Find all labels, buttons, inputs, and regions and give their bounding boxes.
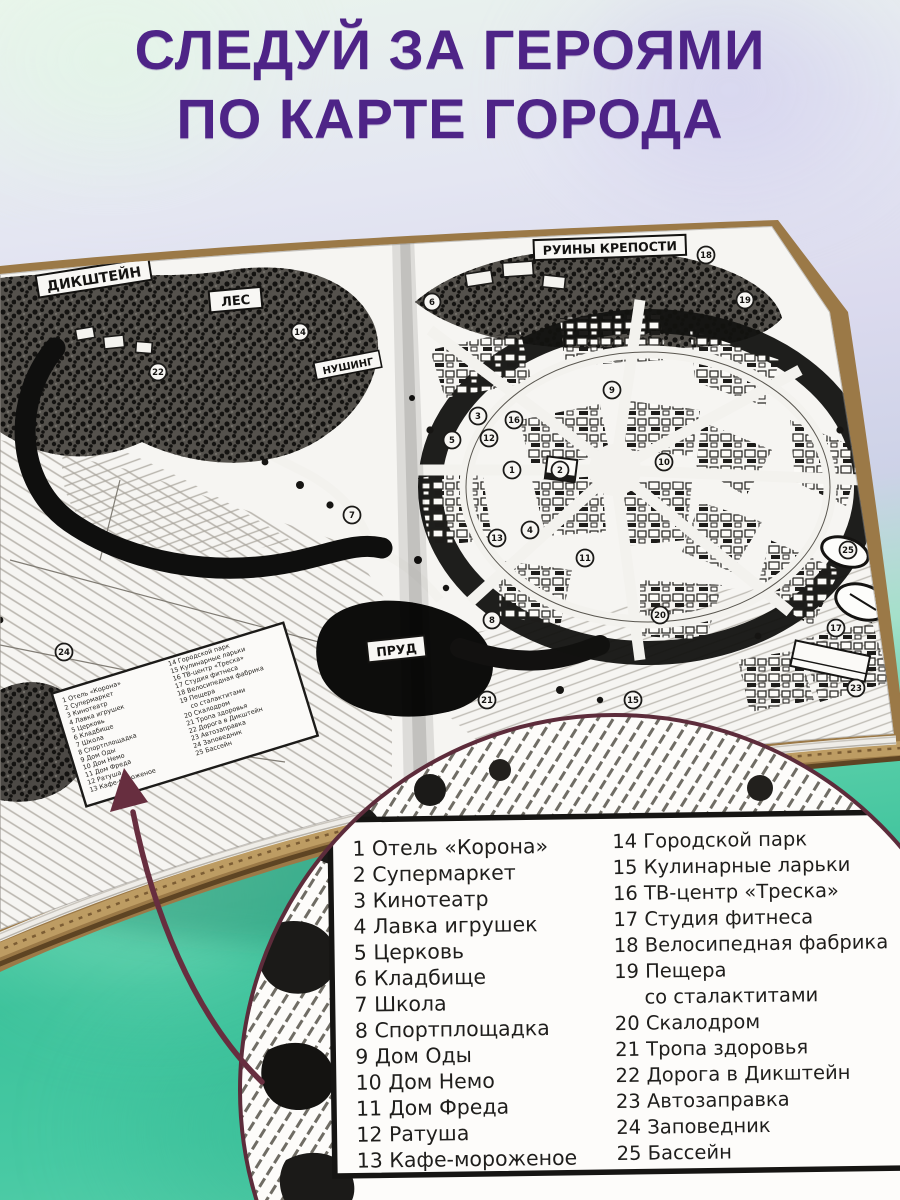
svg-text:16: 16: [508, 416, 520, 426]
map-marker-8: 8: [484, 612, 501, 629]
svg-text:25: 25: [842, 546, 854, 556]
svg-text:12: 12: [483, 434, 495, 444]
map-marker-18: 18: [698, 247, 715, 264]
map-marker-22: 22: [150, 364, 167, 381]
svg-text:6: 6: [429, 298, 435, 308]
legend-item: 23 Автозаправка: [616, 1088, 790, 1113]
svg-text:15: 15: [627, 696, 639, 706]
svg-text:11: 11: [579, 554, 591, 564]
svg-text:20: 20: [654, 611, 666, 621]
legend-item: 9 Дом Оды: [355, 1043, 472, 1069]
legend-item: 7 Школа: [354, 991, 446, 1016]
legend-item: 5 Церковь: [354, 939, 465, 965]
svg-text:9: 9: [609, 386, 615, 396]
legend-item: 14 Городской парк: [612, 827, 807, 853]
svg-text:17: 17: [830, 624, 842, 634]
legend-item: 20 Скалодром: [615, 1010, 761, 1035]
svg-text:21: 21: [481, 696, 493, 706]
map-marker-16: 16: [506, 412, 523, 429]
map-marker-5: 5: [444, 432, 461, 449]
map-marker-13: 13: [489, 530, 506, 547]
map-marker-21: 21: [479, 692, 496, 709]
map-marker-12: 12: [481, 430, 498, 447]
map-marker-4: 4: [522, 522, 539, 539]
sign-forest: ЛЕС: [209, 287, 263, 312]
svg-text:10: 10: [658, 458, 670, 468]
map-marker-11: 11: [577, 550, 594, 567]
svg-text:14: 14: [294, 328, 306, 338]
legend-item: со сталактитами: [644, 983, 818, 1008]
sign-ruins: РУИНЫ КРЕПОСТИ: [534, 235, 687, 260]
map-marker-6: 6: [424, 294, 441, 311]
svg-text:19: 19: [739, 296, 751, 306]
map-marker-25: 25: [840, 542, 857, 559]
svg-text:8: 8: [489, 616, 495, 626]
legend-item: 19 Пещера: [614, 959, 727, 984]
svg-text:22: 22: [152, 368, 164, 378]
map-marker-15: 15: [625, 692, 642, 709]
legend-item: 22 Дорога в Дикштейн: [615, 1061, 850, 1087]
svg-text:4: 4: [527, 526, 533, 536]
map-marker-14: 14: [292, 324, 309, 341]
svg-text:3: 3: [475, 412, 481, 422]
svg-text:2: 2: [557, 466, 563, 476]
map-marker-1: 1: [504, 462, 521, 479]
legend-item: 10 Дом Немо: [355, 1069, 495, 1095]
legend-item: 21 Тропа здоровья: [615, 1035, 808, 1061]
legend-item: 1 Отель «Корона»: [352, 834, 548, 861]
map-marker-9: 9: [604, 382, 621, 399]
legend-item: 16 ТВ-центр «Треска»: [613, 879, 839, 905]
legend-panel: 1 Отель «Корона»2 Супермаркет3 Кинотеатр…: [330, 812, 900, 1176]
legend-item: 18 Велосипедная фабрика: [614, 930, 889, 957]
central-plaza: [589, 444, 641, 496]
legend-item: 25 Бассейн: [616, 1140, 732, 1165]
legend-item: 15 Кулинарные ларьки: [613, 853, 851, 879]
map-marker-2: 2: [552, 462, 569, 479]
map-marker-3: 3: [470, 408, 487, 425]
map-marker-7: 7: [344, 507, 361, 524]
legend-item: 4 Лавка игрушек: [353, 912, 537, 939]
sign-forest-label: ЛЕС: [220, 293, 250, 310]
svg-text:23: 23: [850, 684, 862, 694]
legend-item: 3 Кинотеатр: [353, 887, 489, 913]
svg-text:24: 24: [58, 648, 70, 658]
legend-item: 2 Супермаркет: [353, 860, 516, 886]
svg-text:1: 1: [509, 466, 515, 476]
legend-item: 8 Спортплощадка: [355, 1016, 550, 1043]
scene: 1 Отель «Корона»2 Супермаркет3 Кинотеатр…: [0, 0, 900, 1200]
legend-item: 13 Кафе-мороженое: [357, 1146, 578, 1173]
legend-item: 6 Кладбище: [354, 965, 486, 991]
map-marker-20: 20: [652, 607, 669, 624]
legend-item: 12 Ратуша: [356, 1121, 469, 1147]
svg-text:18: 18: [700, 251, 712, 261]
map-marker-10: 10: [656, 454, 673, 471]
map-marker-24: 24: [56, 644, 73, 661]
legend-item: 11 Дом Фреда: [356, 1095, 509, 1121]
svg-text:5: 5: [449, 436, 455, 446]
legend-item: 24 Заповедник: [616, 1114, 771, 1139]
svg-text:13: 13: [491, 534, 503, 544]
legend-item: 17 Студия фитнеса: [613, 905, 813, 931]
map-marker-19: 19: [737, 292, 754, 309]
svg-text:7: 7: [349, 511, 355, 521]
promo-page: СЛЕДУЙ ЗА ГЕРОЯМИ ПО КАРТЕ ГОРОДА: [0, 0, 900, 1200]
map-marker-23: 23: [848, 680, 865, 697]
map-marker-17: 17: [828, 620, 845, 637]
